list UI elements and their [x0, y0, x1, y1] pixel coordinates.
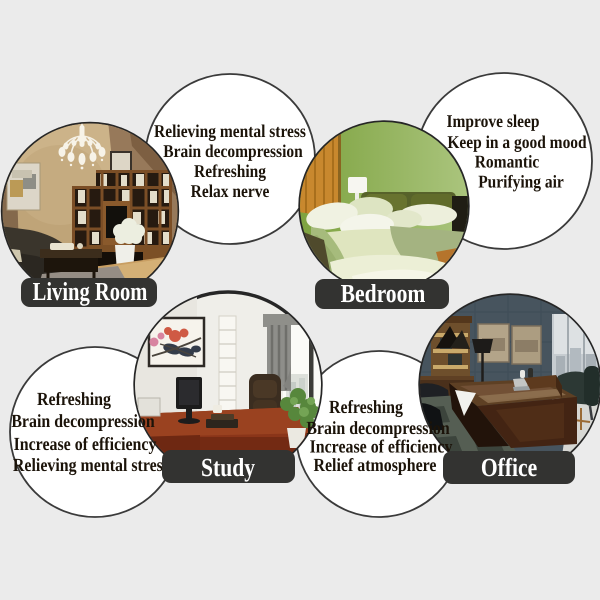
svg-text:Brain decompression: Brain decompression — [163, 141, 302, 161]
svg-text:Brain decompression: Brain decompression — [11, 412, 155, 432]
svg-text:Bedroom: Bedroom — [341, 279, 426, 308]
svg-text:Brain decompression: Brain decompression — [306, 419, 450, 439]
svg-text:Increase of efficiency: Increase of efficiency — [14, 435, 157, 455]
svg-text:Refreshing: Refreshing — [194, 161, 266, 181]
svg-text:Living Room: Living Room — [33, 277, 148, 306]
svg-text:Office: Office — [481, 453, 537, 482]
svg-text:Refreshing: Refreshing — [329, 398, 404, 418]
svg-text:Purifying air: Purifying air — [478, 172, 564, 192]
svg-text:Relax nerve: Relax nerve — [191, 181, 270, 201]
svg-text:Refreshing: Refreshing — [37, 390, 112, 410]
svg-text:Relieving mental stress: Relieving mental stress — [154, 121, 306, 141]
svg-text:Increase of efficiency: Increase of efficiency — [310, 438, 453, 458]
svg-text:Study: Study — [201, 453, 255, 482]
svg-text:Keep in a good mood: Keep in a good mood — [447, 132, 586, 152]
svg-text:Relief atmosphere: Relief atmosphere — [314, 456, 437, 476]
svg-text:Relieving mental stress: Relieving mental stress — [13, 456, 169, 476]
svg-text:Romantic: Romantic — [475, 152, 540, 172]
svg-text:Improve sleep: Improve sleep — [446, 111, 539, 131]
